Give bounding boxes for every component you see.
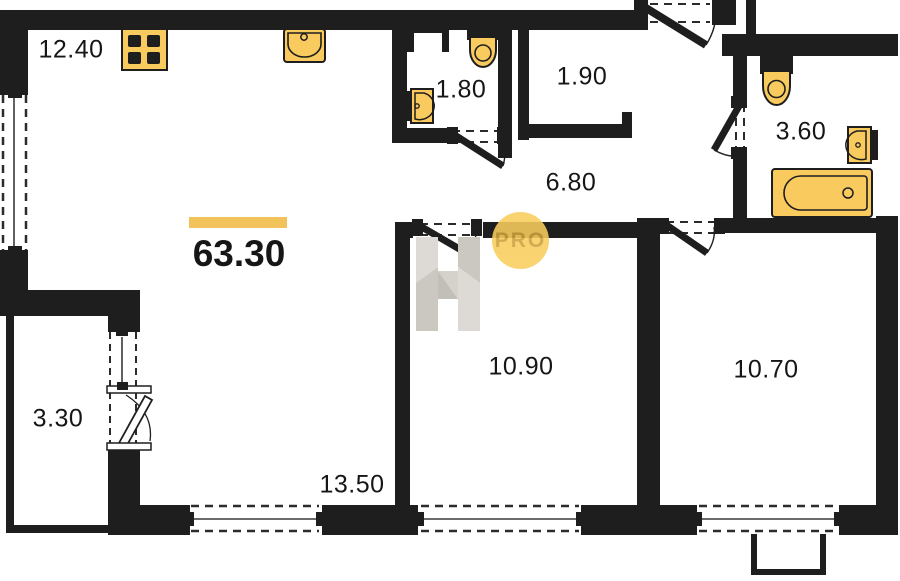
- balcony-door: [107, 326, 152, 450]
- bathroom-door: [714, 96, 747, 159]
- wc-sink-icon: [404, 88, 434, 124]
- room-area-label-bathroom: 3.60: [776, 118, 827, 147]
- room-area-label-kitchen: 12.40: [38, 36, 103, 65]
- room-area-label-living: 13.50: [319, 471, 384, 500]
- total-area-accent-bar: [189, 217, 287, 228]
- bathtub-icon: [771, 168, 873, 218]
- wc-door: [447, 127, 508, 166]
- stove-icon: [121, 28, 169, 72]
- entrance-door: [646, 4, 716, 45]
- room-area-label-storage: 1.90: [557, 63, 608, 92]
- floor-plan: PRO 63.30 12.40 1.80 1.90 3.60 6.80 3.30…: [0, 0, 900, 581]
- watermark-pro-text: PRO: [495, 229, 547, 253]
- wc-toilet-icon: [467, 24, 499, 70]
- room-area-label-hallway: 6.80: [546, 169, 597, 198]
- total-area-label: 63.30: [193, 233, 286, 275]
- window: [184, 506, 326, 531]
- kitchen-sink-icon: [283, 28, 327, 64]
- bathroom-toilet-icon: [760, 56, 793, 108]
- window: [3, 88, 26, 256]
- window: [414, 506, 586, 531]
- window: [692, 506, 844, 531]
- bedroom-2-door: [658, 218, 725, 253]
- room-area-label-bedroom-2: 10.70: [733, 356, 798, 385]
- room-area-label-bedroom-1: 10.90: [488, 353, 553, 382]
- bathroom-sink-icon: [847, 126, 878, 164]
- watermark-logo: [416, 237, 480, 331]
- watermark-pro-badge: PRO: [492, 212, 549, 269]
- exterior-balcony-outline: [754, 534, 823, 572]
- room-area-label-balcony: 3.30: [33, 405, 84, 434]
- room-area-label-wc: 1.80: [436, 76, 487, 105]
